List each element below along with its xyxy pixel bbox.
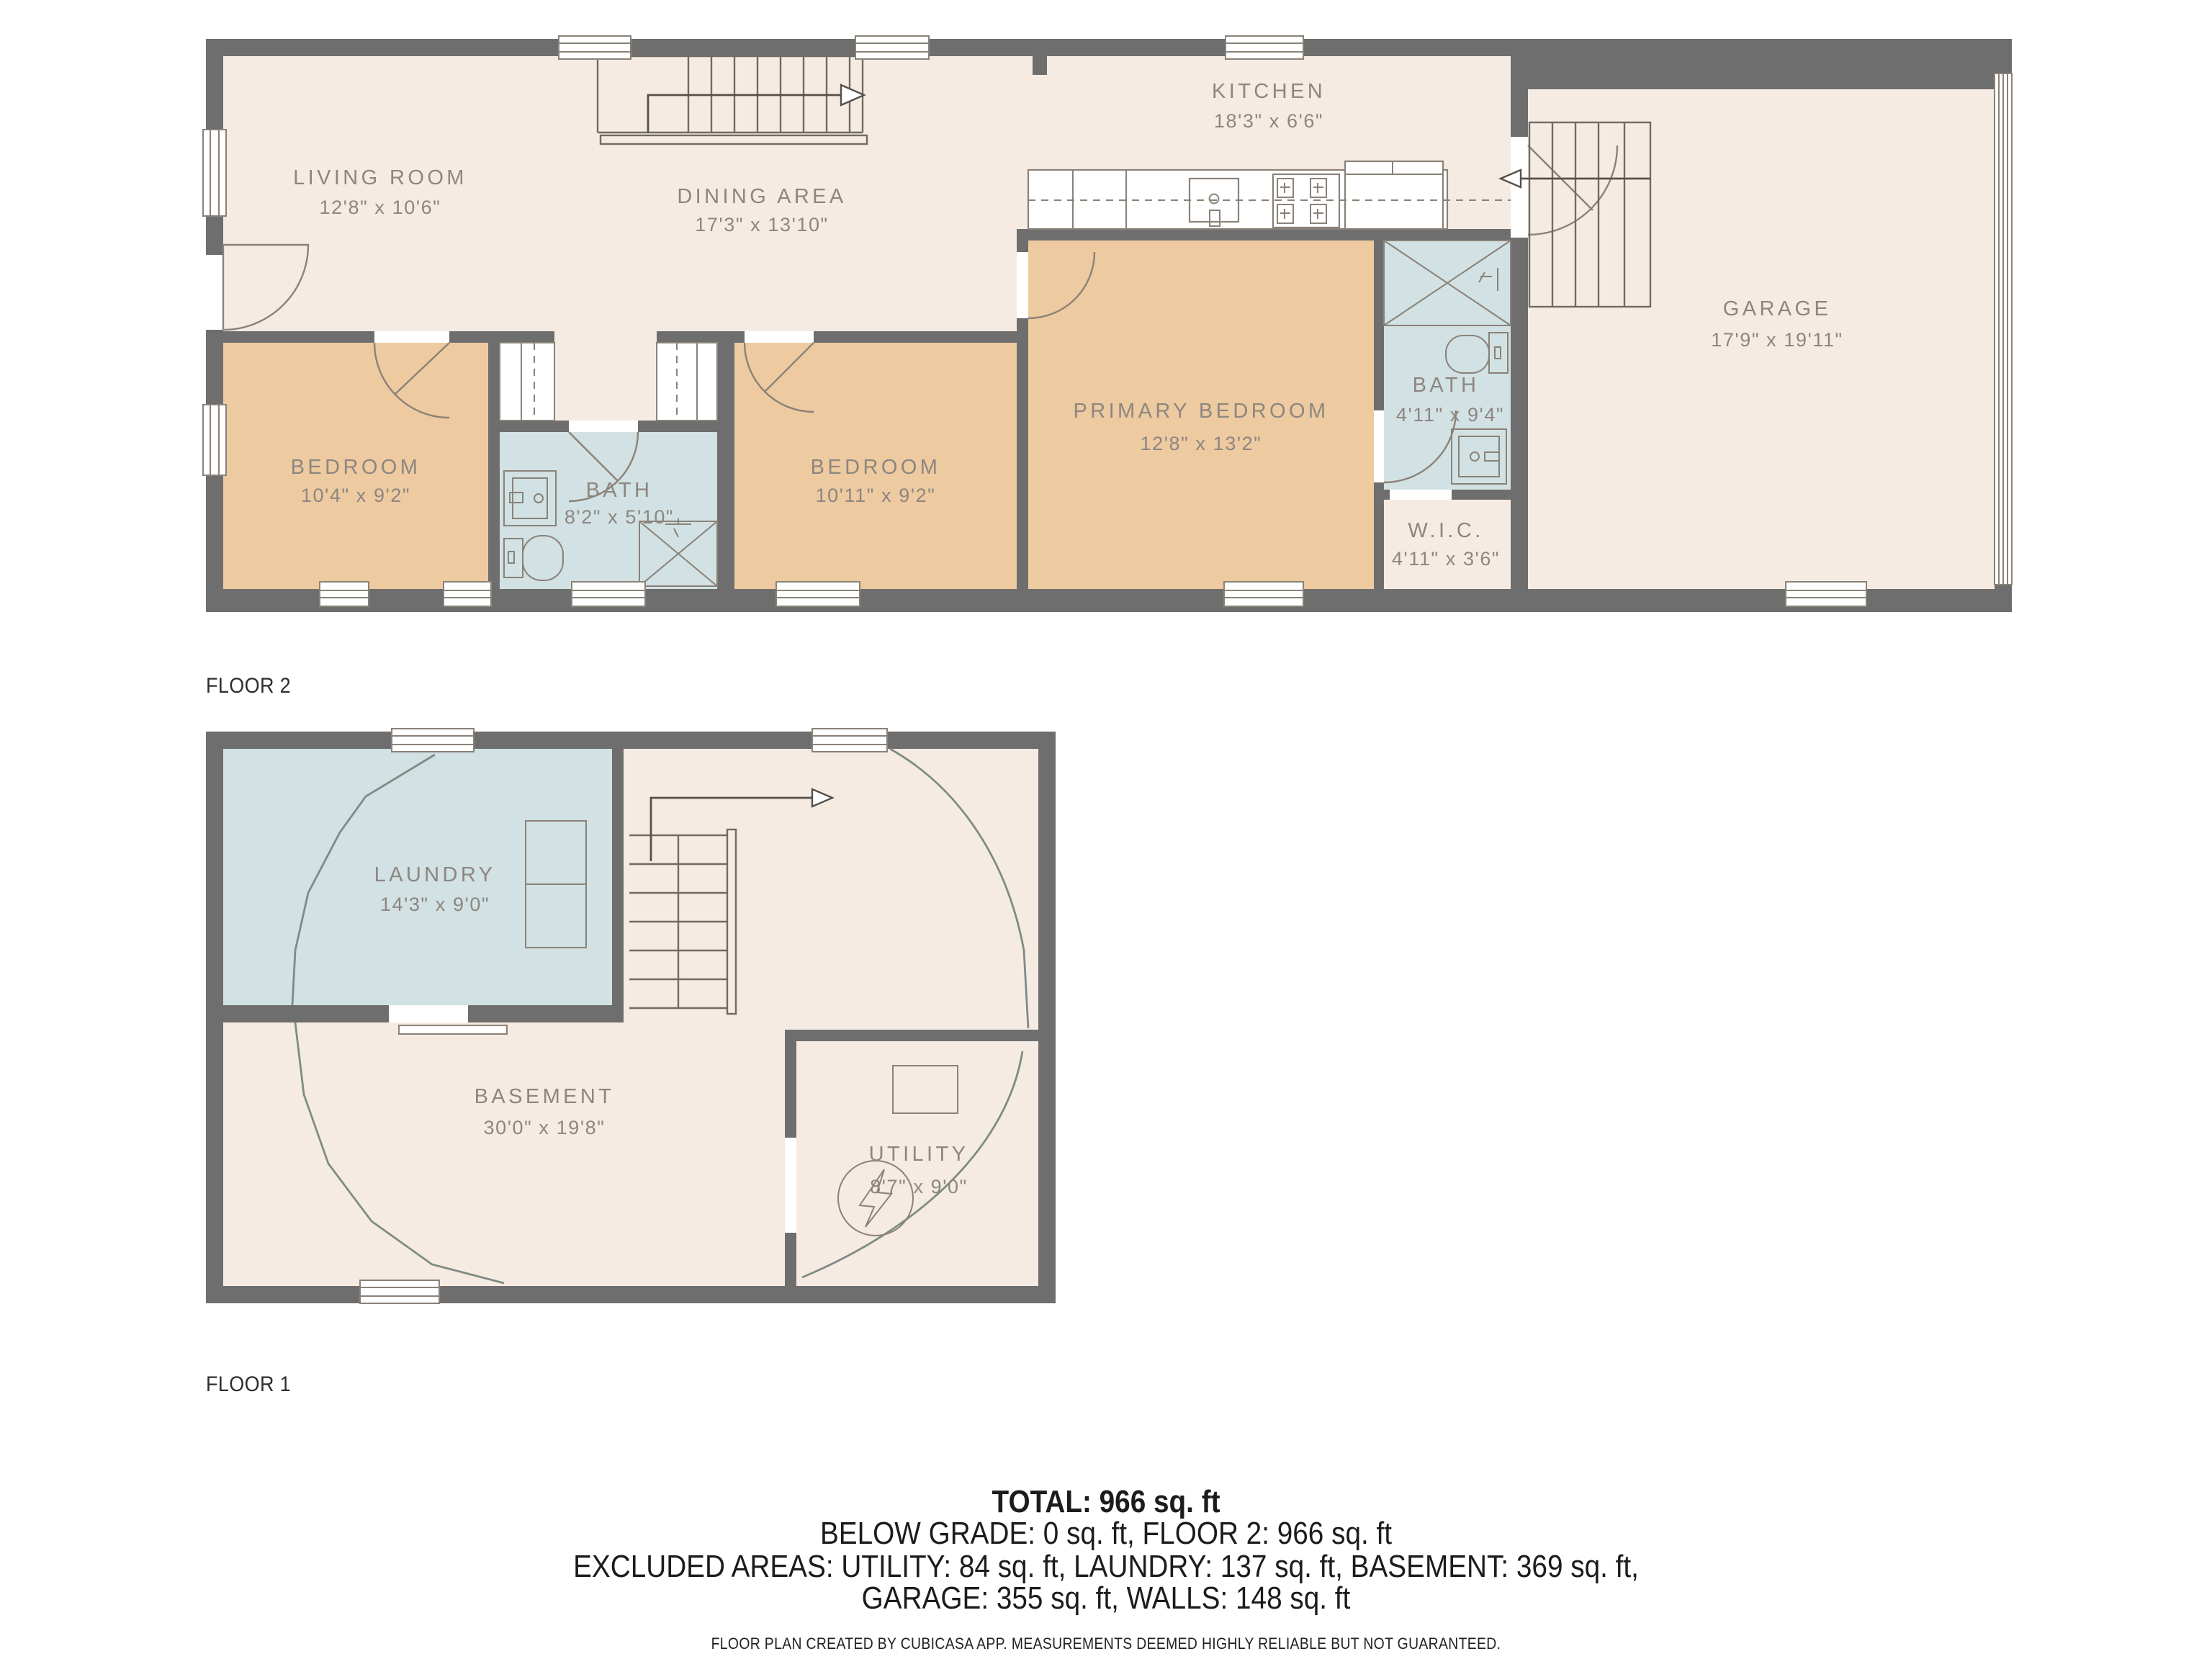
window [559,36,631,59]
floor1-tag: FLOOR 1 [206,1372,291,1397]
room-label-primary-bedroom: PRIMARY BEDROOM [1074,400,1329,423]
summary-grade: BELOW GRADE: 0 sq. ft, FLOOR 2: 966 sq. … [132,1518,2079,1550]
summary-excluded-2: GARAGE: 355 sq. ft, WALLS: 148 sq. ft [132,1583,2079,1615]
sink-icon [1190,179,1238,226]
room-label-laundry: LAUNDRY [374,864,496,887]
room-dims-dining-area: 17'3" x 13'10" [695,214,829,235]
window [320,582,369,606]
room-label-kitchen: KITCHEN [1212,81,1326,104]
window [392,729,474,752]
laundry-door-threshold [399,1025,507,1034]
room-dims-primary-bedroom: 12'8" x 13'2" [1141,433,1262,454]
room-label-bath-main: BATH [586,480,653,503]
window [1786,582,1866,606]
room-dims-garage: 17'9" x 19'11" [1711,329,1843,351]
floor-plan-drawing [0,0,2212,1659]
window [444,582,491,606]
disclaimer-text: FLOOR PLAN CREATED BY CUBICASA APP. MEAS… [132,1636,2079,1653]
room-label-wic: W.I.C. [1408,520,1483,543]
room-label-bedroom-left: BEDROOM [291,457,421,480]
window [572,582,645,606]
window [812,729,887,752]
room-dims-bedroom-left: 10'4" x 9'2" [301,485,410,506]
room-dims-utility: 8'7" x 9'0" [870,1176,968,1197]
summary-total: TOTAL: 966 sq. ft [132,1485,2079,1518]
utility-door-opening [785,1138,796,1233]
window [203,405,226,475]
room-label-living-room: LIVING ROOM [293,167,467,190]
area-summary: TOTAL: 966 sq. ft BELOW GRADE: 0 sq. ft,… [132,1485,2079,1615]
floor2-tag: FLOOR 2 [206,674,291,698]
room-dims-laundry: 14'3" x 9'0" [380,894,490,915]
window [1224,582,1303,606]
room-label-utility: UTILITY [869,1143,969,1166]
window [1226,36,1303,59]
fridge-icon [1345,161,1443,229]
floor-plan-page: LIVING ROOM 12'8" x 10'6" DINING AREA 17… [0,0,2212,1659]
room-label-bath-primary: BATH [1413,374,1480,397]
room-dims-wic: 4'11" x 3'6" [1392,548,1500,570]
room-label-dining-area: DINING AREA [677,186,846,209]
front-door-opening [206,255,223,330]
window [776,582,860,606]
room-dims-kitchen: 18'3" x 6'6" [1214,110,1323,132]
garage-door [1995,73,2012,585]
laundry-door-opening [389,1005,468,1022]
window [855,36,929,59]
room-dims-living-room: 12'8" x 10'6" [320,197,441,218]
room-label-bedroom-middle: BEDROOM [811,457,941,480]
room-label-basement: BASEMENT [475,1086,615,1109]
room-dims-basement: 30'0" x 19'8" [484,1117,606,1138]
window [203,130,226,216]
room-label-garage: GARAGE [1723,298,1832,321]
room-dims-bath-primary: 4'11" x 9'4" [1396,404,1504,426]
floor1-plan [206,729,1056,1303]
kitchen-counter [1028,161,1511,229]
floor2-plan [203,36,2012,612]
room-dims-bedroom-middle: 10'11" x 9'2" [816,485,936,506]
summary-excluded-1: EXCLUDED AREAS: UTILITY: 84 sq. ft, LAUN… [132,1550,2079,1583]
room-dims-bath-main: 8'2" x 5'10" [565,506,674,528]
window [360,1280,439,1303]
